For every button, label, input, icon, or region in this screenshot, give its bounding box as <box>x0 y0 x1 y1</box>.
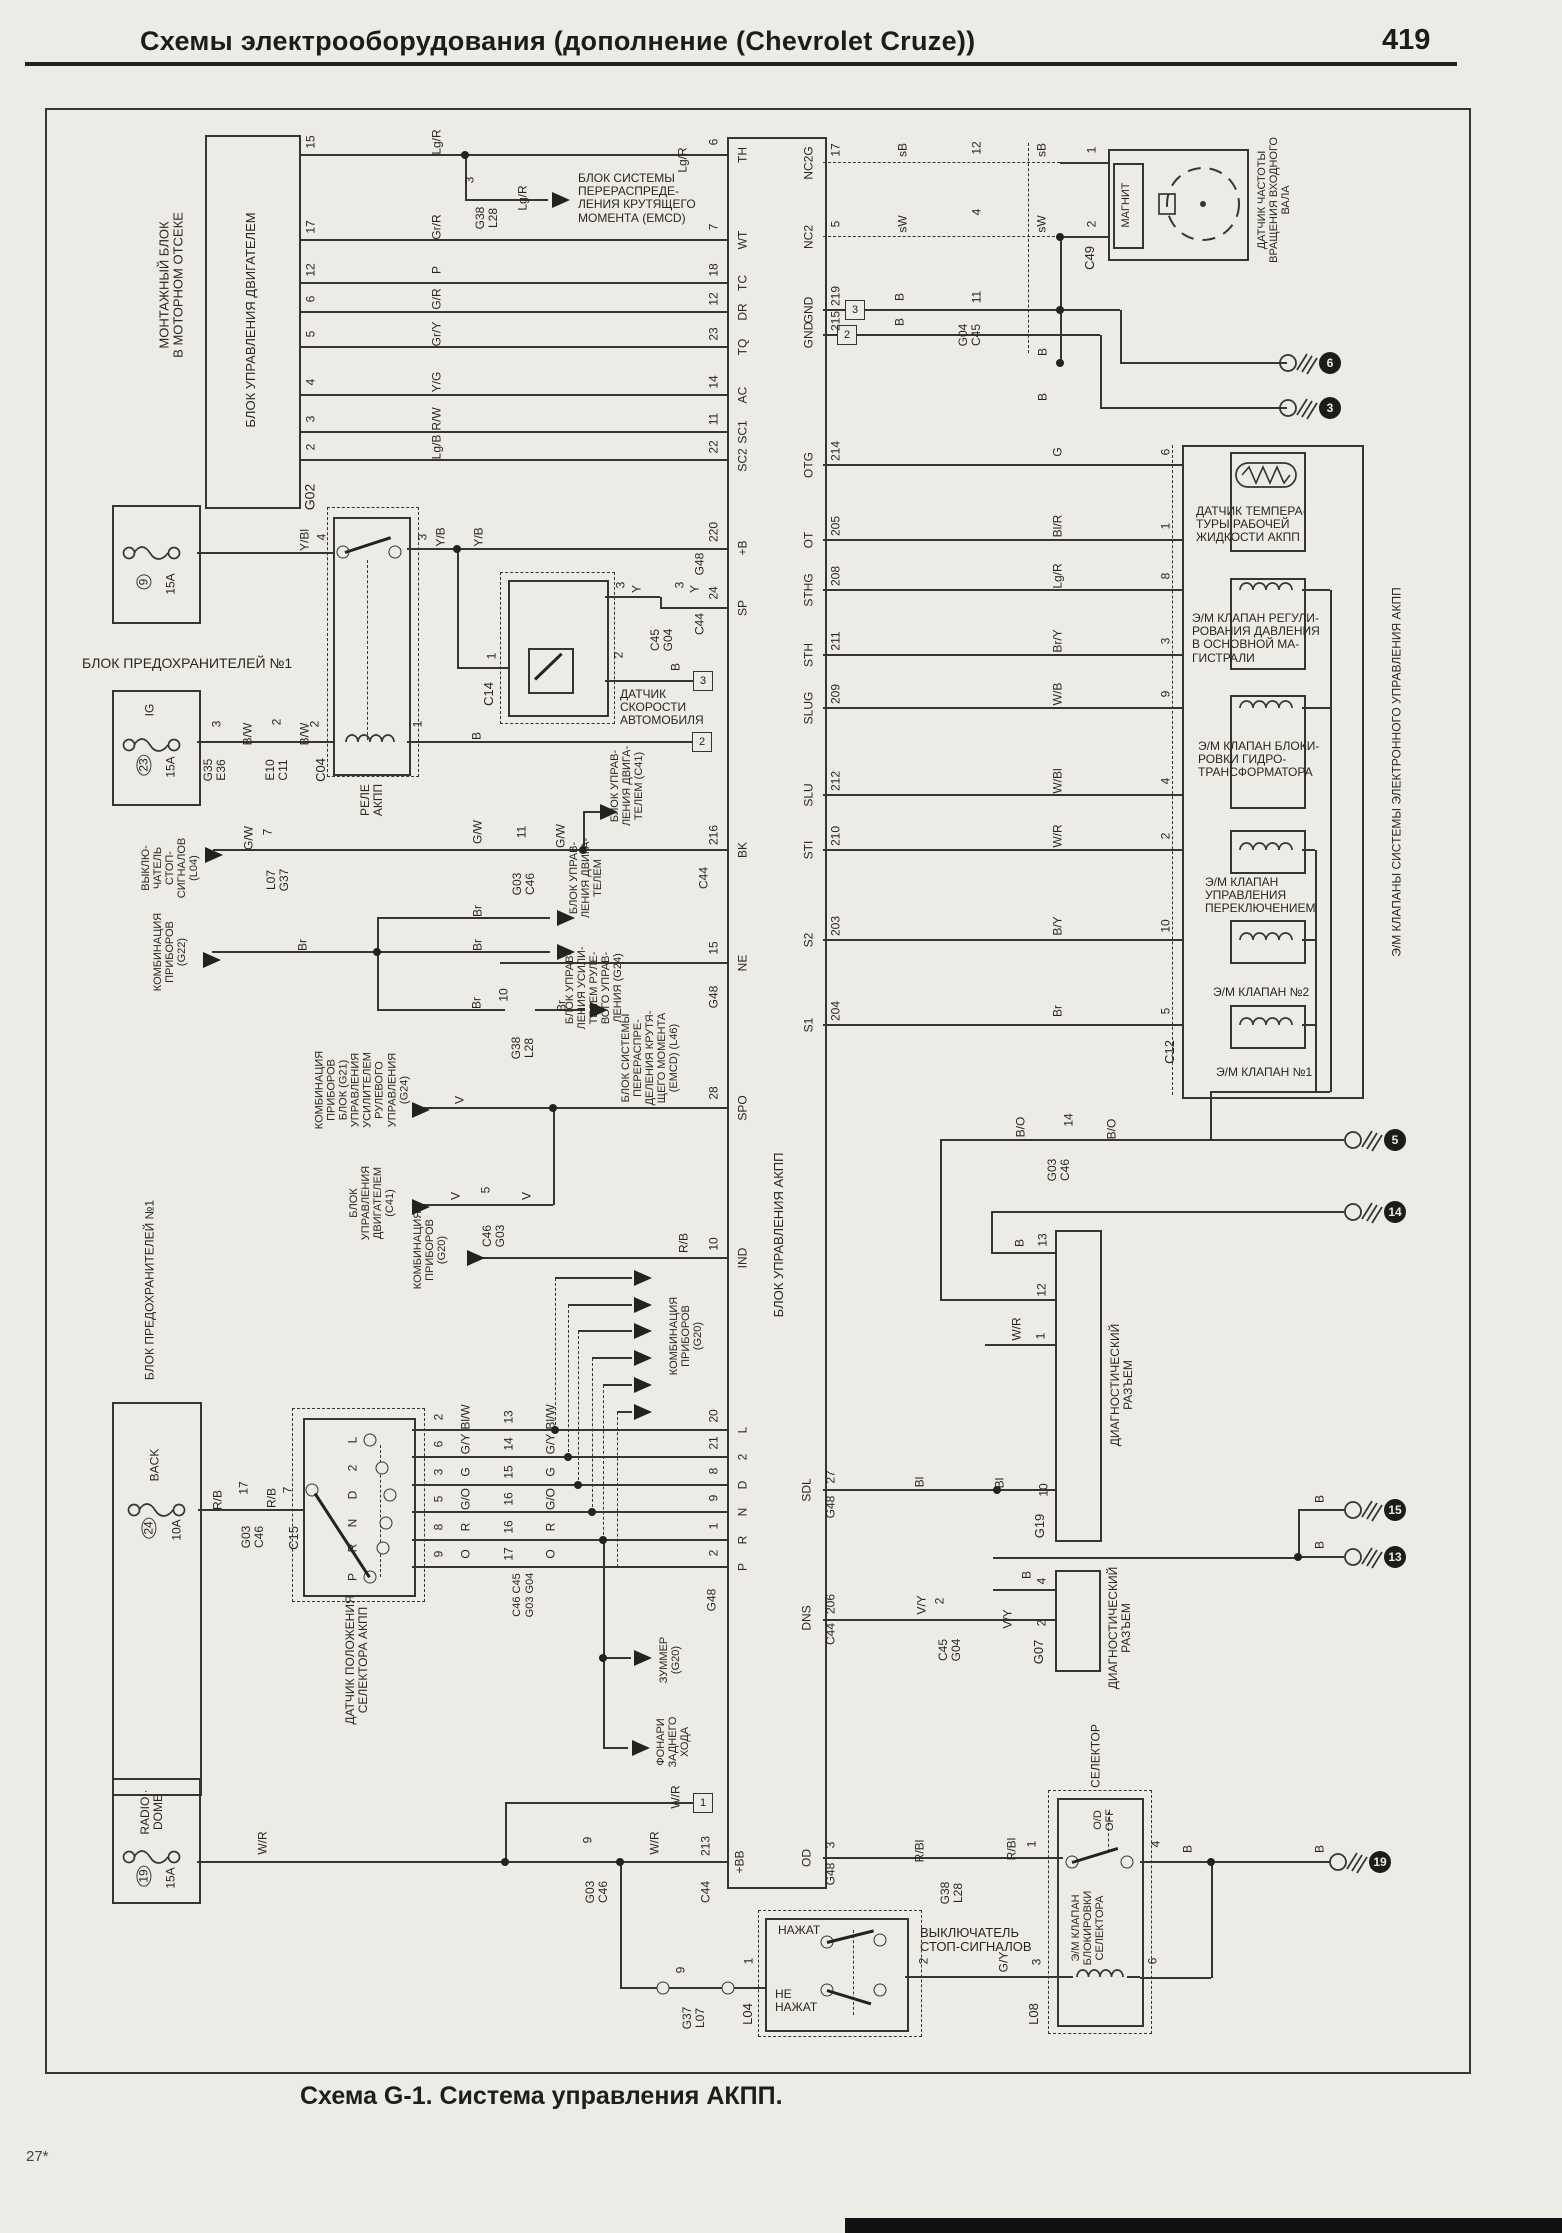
pin-number: 214 <box>829 441 842 461</box>
block-label: ДАТЧИК ЧАСТОТЫ ВРАЩЕНИЯ ВХОДНОГО ВАЛА <box>1256 137 1292 263</box>
pin-name: IND <box>736 1248 749 1269</box>
pin-name: D <box>736 1481 749 1490</box>
pin-number: 22 <box>707 440 720 453</box>
pin-number: 3 <box>1159 638 1172 645</box>
wire-color-label: B/Y <box>1051 916 1064 935</box>
wire-color-label: Bl/W <box>544 1404 557 1429</box>
ground-symbol: 15 <box>1344 1495 1410 1525</box>
wire-color-label: sB <box>1035 143 1048 157</box>
wire-color-label: Y/B <box>434 527 447 546</box>
connector-code: G02 <box>302 484 317 510</box>
wire-color-label: B <box>1036 348 1049 356</box>
wire-color-label: Bl <box>993 1478 1006 1489</box>
wire-color-label: Bl/R <box>1051 515 1064 538</box>
pin-number: 211 <box>829 631 842 650</box>
connector-code: C12 <box>1163 1040 1177 1064</box>
wire-color-label: V/Y <box>1001 1609 1014 1628</box>
temp-sensor-resistor-icon <box>1234 458 1300 492</box>
block-label: ВЫКЛЮ- ЧАТЕЛЬ СТОП- СИГНАЛОВ (L04) <box>140 838 200 898</box>
connector-code: G48 <box>693 553 706 576</box>
wire-color-label: B <box>1036 393 1049 401</box>
flow-arrow-icon <box>634 1350 652 1366</box>
wire-color-label: B <box>1313 1845 1326 1853</box>
connector-code: C44 <box>693 613 706 635</box>
pin-number: 24 <box>707 586 720 599</box>
block-label: БЛОК УПРАВЛЕНИЯ ДВИГАТЕЛЕМ <box>244 212 258 427</box>
pin-number: 2 <box>304 444 317 451</box>
wire-color-label: B <box>1313 1541 1326 1549</box>
page-number: 419 <box>1382 24 1430 57</box>
pin-number: 10 <box>1037 1483 1050 1496</box>
wire-color-label: B/O <box>1014 1117 1027 1138</box>
pin-number: 14 <box>707 375 720 388</box>
solenoid-coil-icon <box>1236 926 1296 946</box>
pin-number: 5 <box>479 1187 492 1194</box>
pin-number: 4 <box>304 379 317 386</box>
pin-number: 9 <box>432 1551 445 1558</box>
block-label: БЛОК УПРАВЛЕНИЯ АКПП <box>772 1153 786 1318</box>
contact-circle <box>389 546 402 559</box>
ground-number: 15 <box>1388 1503 1402 1517</box>
flow-arrow-icon <box>412 1102 430 1118</box>
scanned-wiring-diagram-page: Схемы электрооборудования (дополнение (C… <box>0 0 1562 2233</box>
pin-number: 1 <box>1034 1333 1047 1340</box>
contact-circle <box>377 1542 390 1555</box>
block-label: КОМБИНАЦИЯ ПРИБОРОВ БЛОК (G21) УПРАВЛЕНИ… <box>314 1051 411 1129</box>
block-label: КОМБИНАЦИЯ ПРИБОРОВ (G20) <box>668 1297 704 1375</box>
ground-symbol: 3 <box>1279 393 1345 423</box>
contact-circle <box>1121 1856 1134 1869</box>
wire-color-label: R/B <box>677 1233 690 1253</box>
pin-number: 203 <box>829 916 842 936</box>
device-label: НАЖАТ <box>778 1924 820 1937</box>
flow-arrow-icon <box>552 192 570 208</box>
pin-number: 13 <box>502 1410 515 1423</box>
fuse-label: 10A <box>170 1519 183 1540</box>
pin-number: 8 <box>707 1468 720 1475</box>
pin-number: 17 <box>237 1481 250 1494</box>
wire-color-label: B <box>893 293 906 301</box>
pin-number: 3 <box>1030 1959 1043 1966</box>
junction-dot <box>1056 359 1064 367</box>
wire-color-label: R/Bl <box>913 1840 926 1863</box>
wire-color-label: Lg/R <box>430 129 443 154</box>
pin-number: 216 <box>707 825 720 845</box>
pin-name: P <box>736 1563 749 1571</box>
pin-name: S1 <box>802 1018 815 1033</box>
pin-name: 2 <box>736 1454 749 1461</box>
flow-arrow-icon <box>205 847 223 863</box>
pin-number: 9 <box>1159 691 1172 698</box>
wire-color-label: W/R <box>669 1785 682 1808</box>
device-label: ВЫКЛЮЧАТЕЛЬ СТОП-СИГНАЛОВ <box>920 1926 1032 1955</box>
pin-name: WT <box>736 231 749 250</box>
ground-number: 13 <box>1388 1550 1402 1564</box>
contact-circle <box>722 1982 735 1995</box>
solenoid-coil-icon <box>1236 836 1296 856</box>
diagram-caption: Схема G-1. Система управления АКПП. <box>300 2082 1200 2111</box>
junction-dot <box>574 1481 582 1489</box>
pin-number: 15 <box>304 135 317 148</box>
pin-number: 3 <box>824 1842 837 1849</box>
junction-dot <box>588 1508 596 1516</box>
pin-number: 206 <box>824 1594 837 1614</box>
pin-number: 17 <box>304 220 317 233</box>
pin-number: 5 <box>1159 1008 1172 1015</box>
pin-number: 2 <box>1035 1620 1048 1627</box>
connector-code: E10 C11 <box>264 759 290 780</box>
solenoid-coil-icon <box>1073 1963 1127 1983</box>
wire-color-label: R <box>459 1523 472 1532</box>
pin-name: SC1 <box>736 420 749 443</box>
wire-color-label: R <box>544 1523 557 1532</box>
component-box <box>303 1418 416 1597</box>
pin-number: 210 <box>829 826 842 846</box>
wire-color-label: sB <box>896 143 909 157</box>
flow-arrow-icon <box>634 1404 652 1420</box>
wire-color-label: R/Bl <box>1005 1838 1018 1861</box>
component-box <box>1055 1570 1101 1672</box>
connector-code: G38 L28 <box>939 1882 965 1905</box>
ground-symbol: 5 <box>1344 1125 1410 1155</box>
solenoid-coil-icon <box>342 728 398 748</box>
pin-number: 3 <box>432 1469 445 1476</box>
connector-code: G38 L28 <box>510 1037 536 1060</box>
pin-number: 12 <box>1035 1283 1048 1296</box>
wire-color-label: B/O <box>1105 1119 1118 1140</box>
fuse-icon <box>127 1500 187 1520</box>
wire-color-label: G/W <box>554 824 567 848</box>
solenoid-coil-icon <box>1236 576 1296 596</box>
pin-number: 215 <box>829 311 842 331</box>
pin-number: 8 <box>432 1524 445 1531</box>
pin-number: 2 <box>612 652 625 659</box>
fuse-label: 15A <box>164 1867 177 1888</box>
ground-number: 5 <box>1392 1133 1399 1147</box>
pin-number: 10 <box>707 1237 720 1250</box>
fuse-label: RADIO · DOME <box>139 1789 165 1834</box>
header-rule <box>25 62 1457 66</box>
pin-number: 10 <box>1159 919 1172 932</box>
connector-code: C04 <box>314 758 328 782</box>
pin-number: 2 <box>432 1414 445 1421</box>
pin-number: 16 <box>502 1520 515 1533</box>
wire-color-label: Br <box>555 1000 568 1012</box>
connector-code: G03 C46 <box>584 1881 610 1904</box>
pin-number: 3 <box>416 534 429 541</box>
wire-color-label: sW <box>1035 215 1048 232</box>
pin-name: OD <box>800 1849 813 1867</box>
pin-number: 23 <box>707 327 720 340</box>
fuse-circled-number: 23 <box>136 754 151 775</box>
flow-arrow-icon <box>203 952 221 968</box>
page-title: Схемы электрооборудования (дополнение (C… <box>140 26 975 57</box>
pin-name: N <box>346 1519 359 1528</box>
wire-color-label: G <box>1051 447 1064 456</box>
fuse-circled-number: 24 <box>141 1517 156 1538</box>
device-label: Э/М КЛАПАН БЛОКИ- РОВКИ ГИДРО- ТРАНСФОРМ… <box>1198 740 1319 780</box>
junction-dot <box>1056 233 1064 241</box>
device-label: Э/М КЛАПАН УПРАВЛЕНИЯ ПЕРЕКЛЮЧЕНИЕМ <box>1205 876 1316 916</box>
wire-color-label: W/B <box>1051 683 1064 706</box>
wire-color-label: Bl/W <box>459 1404 472 1429</box>
wire-color-label: W/R <box>1051 824 1064 847</box>
block-label: БЛОК ПРЕДОХРАНИТЕЛЕЙ №1 <box>143 1200 156 1380</box>
pin-number: 2 <box>707 1550 720 1557</box>
junction-dot <box>461 151 469 159</box>
wire-color-label: Lg/R <box>1051 563 1064 588</box>
pin-name: SLUG <box>802 692 815 725</box>
connector-code: G35 E36 <box>202 759 228 782</box>
pin-number: 1 <box>1085 147 1098 154</box>
connector-code: C49 <box>1083 246 1097 270</box>
pin-number: 9 <box>707 1495 720 1502</box>
connector-code: C44 <box>697 867 710 889</box>
pin-number: 11 <box>515 826 528 838</box>
component-box <box>528 648 574 694</box>
pin-number: 15 <box>707 941 720 954</box>
pin-name: D <box>346 1491 359 1500</box>
pin-name: NC2 <box>802 225 815 249</box>
pin-name: OT <box>802 532 815 549</box>
fuse-icon <box>122 543 182 563</box>
pin-number: 17 <box>502 1547 515 1560</box>
fuse-label: 15A <box>164 756 177 777</box>
device-label: ДАТЧИК ТЕМПЕРА- ТУРЫ РАБОЧЕЙ ЖИДКОСТИ АК… <box>1196 505 1307 545</box>
block-label: ЗУММЕР (G20) <box>658 1637 682 1684</box>
contact-circle <box>657 1982 670 1995</box>
wire-color-label: G/R <box>430 288 443 309</box>
block-label: БЛОК УПРАВЛЕНИЯ ДВИГАТЕЛЕМ (C41) <box>348 1166 396 1240</box>
pin-name: SDL <box>800 1478 813 1501</box>
fuse-icon <box>122 1847 182 1867</box>
pin-number: 14 <box>502 1437 515 1450</box>
device-label: Э/М КЛАПАН №2 <box>1213 986 1309 999</box>
connector-code: L08 <box>1027 2003 1041 2025</box>
wire-color-label: Br <box>470 997 483 1009</box>
wire-color-label: V <box>449 1192 462 1200</box>
flow-arrow-icon <box>634 1377 652 1393</box>
pin-number: 3 <box>210 721 223 728</box>
connector-code: G03 G04 <box>524 1573 536 1618</box>
fuse-icon <box>122 735 182 755</box>
block-label: БЛОК УПРАВ- ЛЕНИЯ УСИЛИ- ТЕЛЕМ РУЛЕ- ВОГ… <box>564 946 624 1029</box>
pin-number: 27 <box>824 1470 837 1483</box>
contact-circle <box>380 1517 393 1530</box>
pin-number: 9 <box>581 1837 594 1844</box>
wire-color-label: G/W <box>471 820 484 844</box>
connector-code: G19 <box>1033 1514 1047 1539</box>
pin-name: AC <box>736 387 749 404</box>
contact-circle <box>364 1434 377 1447</box>
connector-code: C45 G04 <box>649 629 675 652</box>
pin-number: 5 <box>304 331 317 338</box>
splice-ref-box: 3 <box>845 300 865 320</box>
block-label: КОМБИНАЦИЯ ПРИБОРОВ (G22) <box>152 913 188 991</box>
block-label: КОМБИНАЦИЯ ПРИБОРОВ (G20) <box>412 1211 448 1289</box>
block-label: СЕЛЕКТОР <box>1089 1724 1102 1788</box>
connector-code: C46 G03 <box>481 1225 507 1248</box>
flow-arrow-icon <box>634 1270 652 1286</box>
splice-ref-box: 1 <box>693 1793 713 1813</box>
ground-symbol: 14 <box>1344 1197 1410 1227</box>
device-label: БЛОК СИСТЕМЫ ПЕРЕРАСПРЕДЕ- ЛЕНИЯ КРУТЯЩЕ… <box>578 172 696 225</box>
pin-name: STI <box>802 841 815 860</box>
pin-name: STH <box>802 643 815 667</box>
pin-number: 6 <box>304 296 317 303</box>
fuse-label: IG <box>143 704 156 717</box>
pin-number: 2 <box>1085 221 1098 228</box>
pin-number: 13 <box>1036 1233 1049 1246</box>
pin-number: 6 <box>1159 449 1172 456</box>
pin-name: SP <box>736 600 749 616</box>
wire-color-label: B <box>1013 1239 1026 1247</box>
wire-color-label: Br <box>296 939 309 951</box>
junction-dot <box>1056 306 1064 314</box>
wire-color-label: Br/Y <box>1051 629 1064 652</box>
pin-name: S2 <box>802 933 815 948</box>
contact-circle <box>874 1984 887 1997</box>
pin-number: 9 <box>674 1967 687 1974</box>
device-label: ДАТЧИК СКОРОСТИ АВТОМОБИЛЯ <box>620 688 704 728</box>
junction-dot <box>1207 1858 1215 1866</box>
wire-color-label: Gr/Y <box>430 322 443 347</box>
pin-name: BK <box>736 842 749 858</box>
pin-number: 12 <box>707 292 720 305</box>
wire-color-label: sW <box>896 215 909 232</box>
flow-arrow-icon <box>632 1740 650 1756</box>
wire-color-label: G/O <box>544 1488 557 1510</box>
pin-number: 6 <box>1146 1958 1159 1965</box>
block-label: РЕЛЕ АКПП <box>359 784 385 816</box>
solenoid-coil-icon <box>1236 1011 1296 1031</box>
wire-color-label: Y/Bl <box>298 529 311 551</box>
ground-symbol: 19 <box>1329 1847 1395 1877</box>
connector-code: G03 C46 <box>511 873 537 896</box>
pin-number: 7 <box>281 1487 294 1494</box>
pin-number: 10 <box>497 988 510 1001</box>
flow-arrow-icon <box>634 1650 652 1666</box>
pin-name: TQ <box>736 339 749 356</box>
pin-number: 3 <box>463 177 476 184</box>
pin-number: 17 <box>829 143 842 156</box>
connector-code: C14 <box>482 682 496 706</box>
wire-color-label: Br <box>1051 1005 1064 1017</box>
pin-number: 204 <box>829 1001 842 1021</box>
pin-name: L <box>736 1427 749 1434</box>
pin-number: 219 <box>829 286 842 306</box>
wire-color-label: V/Y <box>915 1595 928 1614</box>
pin-name: DNS <box>800 1605 813 1630</box>
wire-color-label: B <box>1020 1571 1033 1579</box>
connector-code: G03 C46 <box>240 1526 266 1549</box>
wire-color-label: Gr/R <box>430 214 443 239</box>
wire-color-label: Y <box>688 585 701 593</box>
pin-number: 16 <box>502 1492 515 1505</box>
wire-color-label: B <box>669 663 682 671</box>
pin-number: 11 <box>970 291 983 303</box>
pin-number: 2 <box>308 721 321 728</box>
pin-number: 4 <box>970 209 983 216</box>
pin-number: 20 <box>707 1409 720 1422</box>
wire-color-label: G <box>459 1467 472 1476</box>
ground-symbol: 13 <box>1344 1542 1410 1572</box>
wire-color-label: Br <box>471 905 484 917</box>
gear-icon <box>1157 158 1249 250</box>
pin-name: SPO <box>736 1095 749 1120</box>
pin-number: 12 <box>970 141 983 154</box>
connector-code: C45 G04 <box>937 1639 963 1662</box>
pin-number: 2 <box>933 1598 946 1605</box>
block-label: МОНТАЖНЫЙ БЛОК В МОТОРНОМ ОТСЕКЕ <box>158 212 187 358</box>
connector-code: G38 L28 <box>474 207 500 230</box>
splice-ref-box: 2 <box>692 732 712 752</box>
pin-number: 3 <box>614 582 627 589</box>
contact-circle <box>384 1489 397 1502</box>
wire-color-label: G <box>544 1467 557 1476</box>
junction-dot <box>616 1858 624 1866</box>
pin-number: 1 <box>411 721 424 728</box>
junction-dot <box>564 1453 572 1461</box>
pin-name: NC2G <box>802 146 815 179</box>
device-label: НЕ НАЖАТ <box>775 1988 817 2014</box>
connector-code: G03 C46 <box>1046 1159 1072 1182</box>
connector-code: G48 <box>824 1863 837 1886</box>
junction-dot <box>599 1654 607 1662</box>
device-label: Э/М КЛАПАН №1 <box>1216 1066 1312 1079</box>
pin-name: TH <box>736 147 749 163</box>
pin-name: STHG <box>802 573 815 606</box>
junction-dot <box>453 545 461 553</box>
block-label: БЛОК СИСТЕМЫ ПЕРЕРАСПРЕ- ДЕЛЕНИЯ КРУТЯ- … <box>620 1011 680 1106</box>
pin-number: 208 <box>829 566 842 586</box>
wire-color-label: G/W <box>242 826 255 850</box>
pin-number: 7 <box>261 829 274 836</box>
wire-color-label: G/Y <box>544 1434 557 1455</box>
fuse-label: BACK <box>148 1449 161 1482</box>
pin-number: 4 <box>1159 778 1172 785</box>
ground-number: 19 <box>1373 1855 1387 1869</box>
device-label: МАГНИТ <box>1120 182 1132 227</box>
contact-circle <box>376 1462 389 1475</box>
flow-arrow-icon <box>634 1323 652 1339</box>
device-label: O/D OFF <box>1092 1809 1116 1831</box>
pin-number: 6 <box>432 1441 445 1448</box>
pin-number: 213 <box>699 1836 712 1856</box>
wire-color-label: B <box>470 732 483 740</box>
junction-dot <box>373 948 381 956</box>
block-label: БЛОК ПРЕДОХРАНИТЕЛЕЙ №1 <box>82 656 292 671</box>
connector-code: G07 <box>1032 1640 1046 1665</box>
wire-color-label: R/B <box>211 1490 224 1510</box>
connector-code: G48 <box>707 986 720 1009</box>
pin-number: 2 <box>917 1958 930 1965</box>
wire-color-label: R/B <box>265 1488 278 1508</box>
wire-color-label: B <box>893 318 906 326</box>
pin-number: 12 <box>304 263 317 276</box>
block-label: ДАТЧИК ПОЛОЖЕНИЯ СЕЛЕКТОРА АКПП <box>344 1595 370 1724</box>
pin-name: TC <box>736 275 749 291</box>
pin-number: 1 <box>707 1523 720 1530</box>
wire-color-label: Y/G <box>430 372 443 393</box>
wire-color-label: V <box>453 1096 466 1104</box>
wire-color-label: G/Y <box>997 1952 1010 1973</box>
fuse-circled-number: 19 <box>136 1865 151 1886</box>
wire-color-label: W/R <box>648 1831 661 1854</box>
pin-name: GND <box>802 297 815 324</box>
pin-number: 5 <box>432 1496 445 1503</box>
component-box <box>1055 1230 1102 1542</box>
